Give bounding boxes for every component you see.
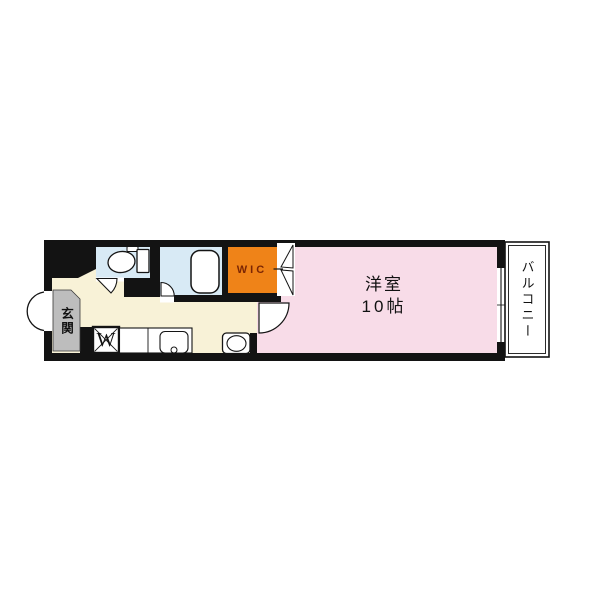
- front-door-swing-icon: [27, 291, 52, 331]
- western-room-floor: [281, 247, 497, 353]
- wall-segment: [80, 327, 93, 353]
- floorplan-image: 洋室 10帖 WIC バルコニー 玄関 W: [0, 0, 600, 600]
- window-icon: [497, 268, 505, 342]
- kitchen-sink-icon: [120, 328, 193, 353]
- floor-plan-drawing: [0, 0, 600, 600]
- balcony-outline: [505, 242, 549, 357]
- entrance-pad: [53, 290, 80, 351]
- washbasin-icon: [223, 333, 251, 354]
- bathtub-icon: [191, 251, 219, 294]
- wic-floor: [228, 247, 277, 293]
- washer-pan-icon: [93, 327, 119, 353]
